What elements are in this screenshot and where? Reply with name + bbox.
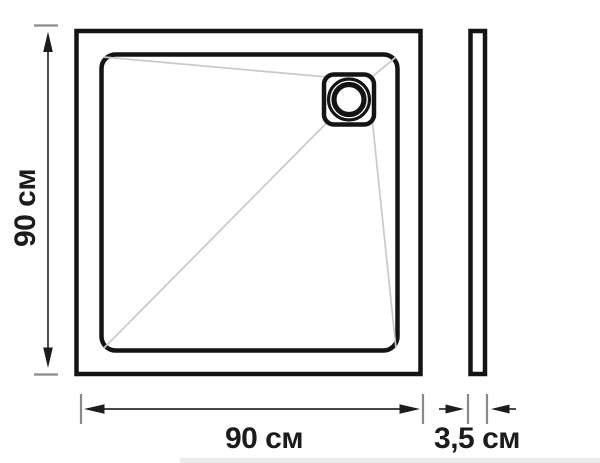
width-dimension xyxy=(81,394,423,424)
drain xyxy=(324,75,374,125)
thickness-dim-label: 3,5 см xyxy=(434,422,520,456)
tray-side-view-outline xyxy=(471,31,486,374)
width-dim-label: 90 см xyxy=(225,422,303,456)
height-dim-arrow-up-icon xyxy=(43,32,53,53)
drawing-canvas: 90 см 90 см 3,5 см xyxy=(0,0,600,463)
shower-tray-drawing xyxy=(0,0,600,463)
width-dim-arrow-right-icon xyxy=(400,404,421,414)
thickness-dimension xyxy=(439,394,516,424)
width-dim-arrow-left-icon xyxy=(84,404,105,414)
thickness-dim-arrow-left-icon xyxy=(491,405,510,414)
bottom-edge-strip xyxy=(180,458,600,463)
height-dim-arrow-down-icon xyxy=(43,348,53,369)
height-dim-label: 90 см xyxy=(9,169,43,247)
thickness-dim-arrow-right-icon xyxy=(446,405,465,414)
